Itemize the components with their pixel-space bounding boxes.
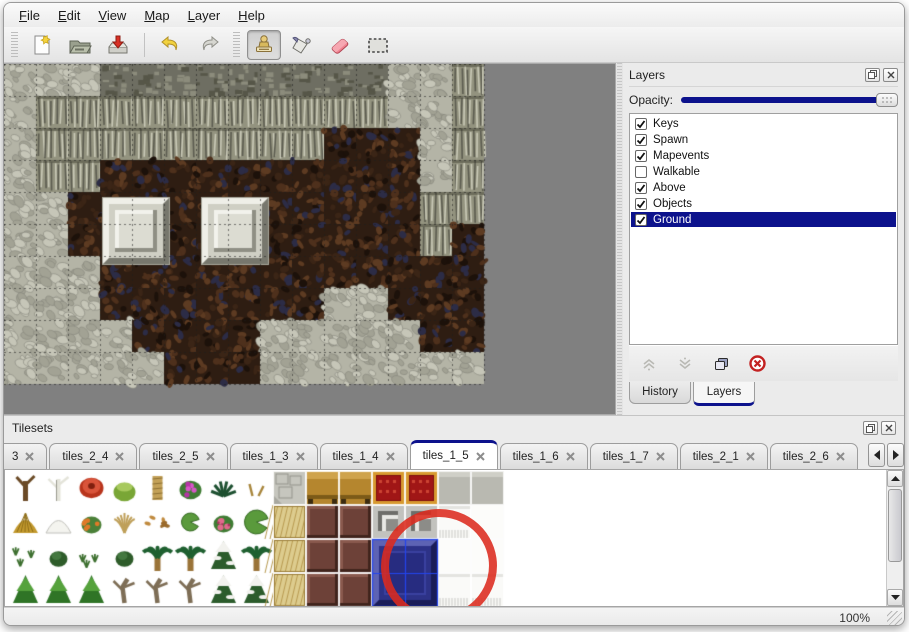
tileset-tab-label: 3 [12,451,18,463]
move-up-icon [641,356,657,372]
undo-button[interactable] [154,30,188,60]
layer-checkbox[interactable] [635,150,647,162]
menu-view[interactable]: View [89,5,135,26]
zoom-level: 100% [839,611,870,625]
tab-close-icon[interactable] [566,452,575,461]
opacity-slider-track [681,97,894,103]
tab-scroll-buttons [868,443,904,467]
tab-close-icon[interactable] [296,452,305,461]
tab-layers[interactable]: Layers [693,382,755,406]
check-icon [636,215,646,225]
toolbar-separator [144,33,145,57]
open-file-button[interactable] [63,30,97,60]
toolbar-grip-2[interactable] [233,32,240,58]
tileset-tab-label: tiles_1_3 [243,451,289,463]
move-down-icon [677,356,693,372]
tab-close-icon[interactable] [25,452,34,461]
layers-dock: Layers Opacity: [623,63,904,415]
open-folder-icon [67,33,93,57]
tileset-tab-label: tiles_2_1 [693,451,739,463]
tileset-tab-label: tiles_1_6 [513,451,559,463]
opacity-slider-handle[interactable] [876,93,898,107]
tileset-content [4,469,904,607]
duplicate-layer-button[interactable] [709,352,733,376]
layer-name: Above [653,182,686,194]
redo-button[interactable] [192,30,226,60]
status-bar: 100% [4,607,904,626]
layer-tools [629,345,898,381]
tileset-tabbar: 3 tiles_2_4 tiles_2_5 tiles_1_3 tiles_1_… [4,440,904,469]
redo-icon [196,33,222,57]
close-icon [885,424,893,432]
tab-close-icon[interactable] [476,452,485,461]
opacity-slider[interactable] [681,92,898,108]
dock-bottom-tabs: History Layers [629,381,898,409]
delete-icon [749,355,766,372]
scroll-up-button[interactable] [887,470,903,487]
map-canvas[interactable] [4,64,614,414]
arrow-left-icon [873,450,881,460]
layer-row-ground[interactable]: Ground [631,212,896,227]
tileset-tab[interactable]: tiles_2_6 [770,443,858,469]
scroll-down-button[interactable] [887,589,903,606]
tileset-tab-label: tiles_2_6 [783,451,829,463]
layer-checkbox[interactable] [635,214,647,226]
layer-row-spawn[interactable]: Spawn [631,132,896,147]
save-icon [105,33,131,57]
menu-map[interactable]: Map [135,5,178,26]
tileset-tab[interactable]: tiles_1_3 [230,443,318,469]
eraser-tool-button[interactable] [323,30,357,60]
tileset-tab[interactable]: tiles_2_5 [139,443,227,469]
tileset-tab-label: tiles_1_5 [423,450,469,462]
float-tilesets-button[interactable] [863,421,878,435]
float-icon [866,424,875,433]
layer-checkbox[interactable] [635,182,647,194]
save-button[interactable] [101,30,135,60]
layer-name: Keys [653,118,679,130]
check-icon [636,151,646,161]
close-panel-button[interactable] [883,68,898,82]
duplicate-icon [713,356,730,372]
tab-scroll-right-button[interactable] [887,443,904,467]
fill-tool-icon [289,33,315,57]
slider-grip-dots [881,96,893,104]
new-file-icon [30,33,54,57]
tileset-tab-label: tiles_2_4 [62,451,108,463]
tileset-tab[interactable]: tiles_1_7 [590,443,678,469]
layer-name: Ground [653,214,691,226]
select-tool-button[interactable] [361,30,395,60]
layer-checkbox[interactable] [635,118,647,130]
map-canvas-area [4,63,616,415]
layer-checkbox[interactable] [635,134,647,146]
opacity-label: Opacity: [629,93,673,107]
menu-help[interactable]: Help [229,5,274,26]
eraser-tool-icon [327,33,353,57]
toolbar [4,27,904,63]
dock-splitter[interactable] [616,63,623,415]
tileset-tab-label: tiles_2_5 [152,451,198,463]
tileset-tab-label: tiles_1_7 [603,451,649,463]
tileset-tab-label: tiles_1_4 [333,451,379,463]
tileset-tab[interactable]: tiles_1_4 [320,443,408,469]
tileset-scrollbar[interactable] [886,470,903,606]
resize-grip[interactable] [887,611,902,626]
tileset-tab[interactable]: 3 [4,443,47,469]
close-tilesets-button[interactable] [881,421,896,435]
check-icon [636,183,646,193]
tileset-tab[interactable]: tiles_2_1 [680,443,768,469]
check-icon [636,119,646,129]
menu-file[interactable]: File [10,5,49,26]
layers-panel-title: Layers [629,68,862,82]
layer-row-mapevents[interactable]: Mapevents [631,148,896,163]
tileset-tab[interactable]: tiles_1_6 [500,443,588,469]
tab-close-icon[interactable] [206,452,215,461]
layer-row-walkable[interactable]: Walkable [631,164,896,179]
float-icon [868,70,877,79]
layer-row-keys[interactable]: Keys [631,116,896,131]
tileset-canvas[interactable] [9,471,509,607]
delete-layer-button[interactable] [745,352,769,376]
tab-scroll-left-button[interactable] [868,443,885,467]
menu-layer[interactable]: Layer [179,5,230,26]
tilesets-dock: Tilesets 3 tiles_2_4 [4,415,904,607]
new-file-button[interactable] [25,30,59,60]
tilesets-panel-title: Tilesets [12,421,860,435]
undo-icon [158,33,184,57]
layer-checkbox[interactable] [635,198,647,210]
layer-checkbox[interactable] [635,166,647,178]
check-icon [636,199,646,209]
tab-close-icon[interactable] [115,452,124,461]
stamp-tool-icon [252,33,276,57]
fill-tool-button[interactable] [285,30,319,60]
stamp-tool-button[interactable] [247,30,281,60]
tab-close-icon[interactable] [656,452,665,461]
menu-edit[interactable]: Edit [49,5,89,26]
opacity-row: Opacity: [629,87,898,113]
layers-dock-titlebar: Layers [629,63,898,87]
layer-row-objects[interactable]: Objects [631,196,896,211]
tab-close-icon[interactable] [386,452,395,461]
tilesets-titlebar: Tilesets [4,416,904,440]
tileset-tab[interactable]: tiles_2_4 [49,443,137,469]
arrow-down-icon [891,594,900,601]
tab-close-icon[interactable] [746,452,755,461]
check-icon [636,135,646,145]
tab-history[interactable]: History [629,382,691,404]
close-icon [887,71,895,79]
toolbar-grip[interactable] [11,32,18,58]
menu-bar: File Edit View Map Layer Help [4,3,904,27]
layer-name: Mapevents [653,150,709,162]
float-panel-button[interactable] [865,68,880,82]
scrollbar-thumb[interactable] [888,489,902,562]
move-layer-down-button[interactable] [673,352,697,376]
scrollbar-track[interactable] [887,487,903,589]
layer-name: Walkable [653,166,700,178]
arrow-up-icon [891,475,900,482]
app-window: File Edit View Map Layer Help [3,2,905,626]
layer-name: Objects [653,198,692,210]
select-tool-icon [365,33,391,57]
layer-row-above[interactable]: Above [631,180,896,195]
arrow-right-icon [892,450,900,460]
main-area: Layers Opacity: [4,63,904,415]
layer-list: Keys Spawn Mapevents Walkable Above [629,113,898,345]
tileset-tab-active[interactable]: tiles_1_5 [410,440,498,469]
move-layer-up-button[interactable] [637,352,661,376]
tab-close-icon[interactable] [836,452,845,461]
layer-name: Spawn [653,134,688,146]
